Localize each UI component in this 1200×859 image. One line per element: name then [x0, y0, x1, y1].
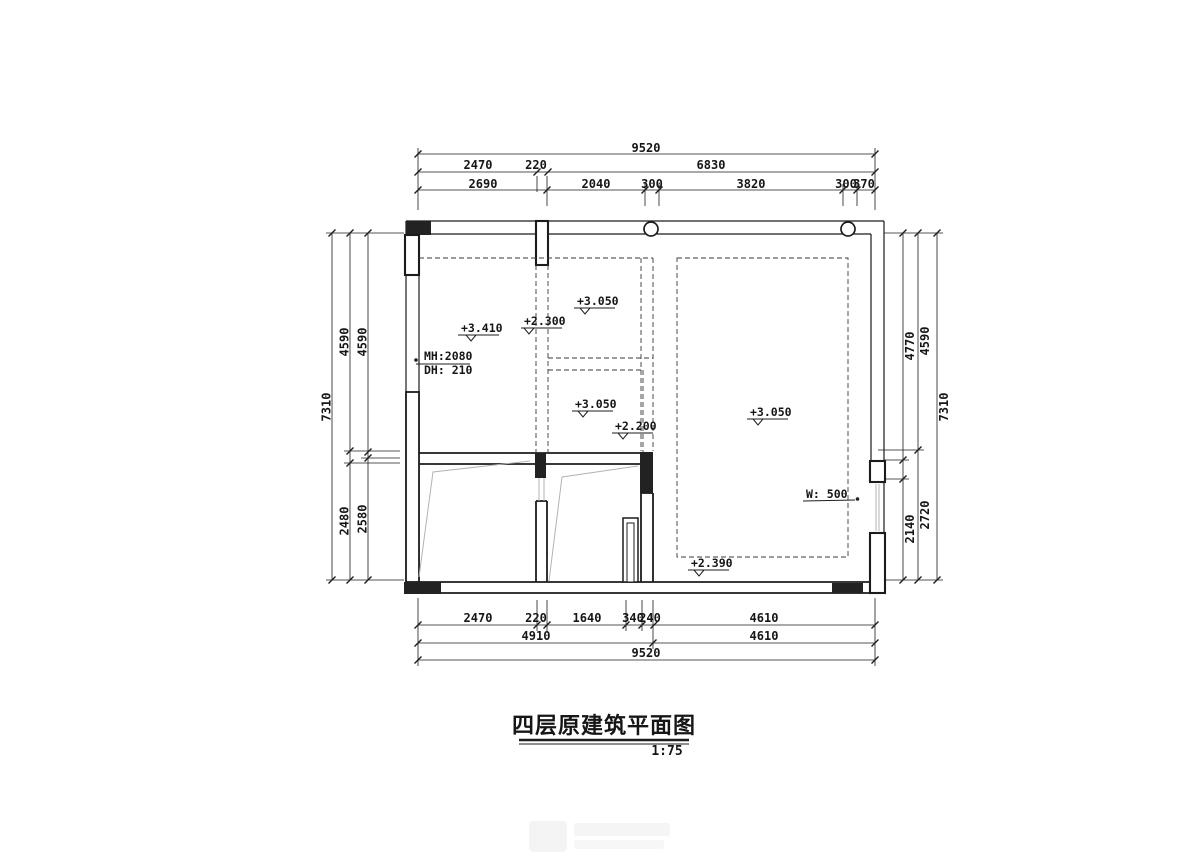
elevation-label: +2.390 [691, 556, 733, 570]
pier-bottom-right [832, 583, 863, 593]
plan-title: 四层原建筑平面图 [512, 713, 696, 739]
door-height-label: MH:2080 [424, 349, 473, 363]
column-circle-1 [644, 222, 658, 236]
drawing-canvas: 9520 2470 220 6830 2690 2040 300 3820 30… [0, 0, 1200, 859]
dim-label: 2470 [464, 158, 493, 172]
dim-label: 240 [639, 611, 661, 625]
dim-label: 370 [853, 177, 875, 191]
dim-label: 2140 [903, 515, 917, 544]
elevation-label: +3.050 [750, 405, 792, 419]
sloped-ceiling-line-left [419, 461, 530, 577]
wall-block-mid-2 [640, 452, 653, 493]
dim-label: 2690 [469, 177, 498, 191]
walls-group [404, 221, 885, 594]
dim-label: 6830 [697, 158, 726, 172]
dim-label: 4770 [903, 332, 917, 361]
left-wall-solid-segment [406, 392, 419, 582]
dim-label: 1640 [573, 611, 602, 625]
window-frame-right [870, 461, 885, 482]
dimension-group-left: 7310 4590 2480 4590 2580 [320, 230, 405, 584]
elevation-label: +3.050 [577, 294, 619, 308]
dim-label: 3820 [737, 177, 766, 191]
dimension-group-right: 4770 2140 4590 2720 7310 [878, 230, 951, 584]
dim-label: 2720 [918, 501, 932, 530]
dim-label: 300 [641, 177, 663, 191]
dim-label: 2470 [464, 611, 493, 625]
pier-top-left-lower [405, 235, 419, 275]
pier-bottom-left [404, 582, 441, 594]
dim-label: 220 [525, 611, 547, 625]
dimension-group-top: 9520 2470 220 6830 2690 2040 300 3820 30… [415, 141, 879, 210]
wall-block-mid-1 [535, 453, 546, 478]
dim-label: 2580 [356, 505, 370, 534]
dim-label: 4590 [338, 328, 352, 357]
dim-label: 4910 [522, 629, 551, 643]
watermark [529, 821, 670, 852]
dim-label: 4610 [750, 611, 779, 625]
elevation-label: +2.300 [524, 314, 566, 328]
duct-inner [627, 523, 634, 582]
pier-bottom-right-corner [870, 533, 885, 593]
leader-dot [856, 497, 860, 501]
title-block: 四层原建筑平面图 1:75 [512, 713, 696, 759]
corner-pier-top-left [406, 221, 431, 235]
dimension-group-bottom: 2470 220 1640 340 240 4610 4910 4610 952… [415, 598, 879, 666]
dim-label: 7310 [937, 393, 951, 422]
leader-dot [414, 358, 418, 362]
dim-label: 7310 [320, 393, 334, 422]
dim-label: 4590 [356, 328, 370, 357]
elevation-label: +3.410 [461, 321, 503, 335]
scale-label: 1:75 [651, 744, 682, 759]
window-width-label: W: 500 [806, 487, 848, 501]
dim-label: 2480 [338, 507, 352, 536]
column-circle-2 [841, 222, 855, 236]
dim-label: 9520 [632, 141, 661, 155]
floor-plan-svg: 9520 2470 220 6830 2690 2040 300 3820 30… [0, 0, 1200, 859]
elevation-label: +2.200 [615, 419, 657, 433]
dim-label: 4590 [918, 327, 932, 356]
dim-label: 220 [525, 158, 547, 172]
dim-label: 4610 [750, 629, 779, 643]
door-height-label-2: DH: 210 [424, 363, 473, 377]
dim-label: 9520 [632, 646, 661, 660]
elevation-label: +3.050 [575, 397, 617, 411]
dim-label: 2040 [582, 177, 611, 191]
